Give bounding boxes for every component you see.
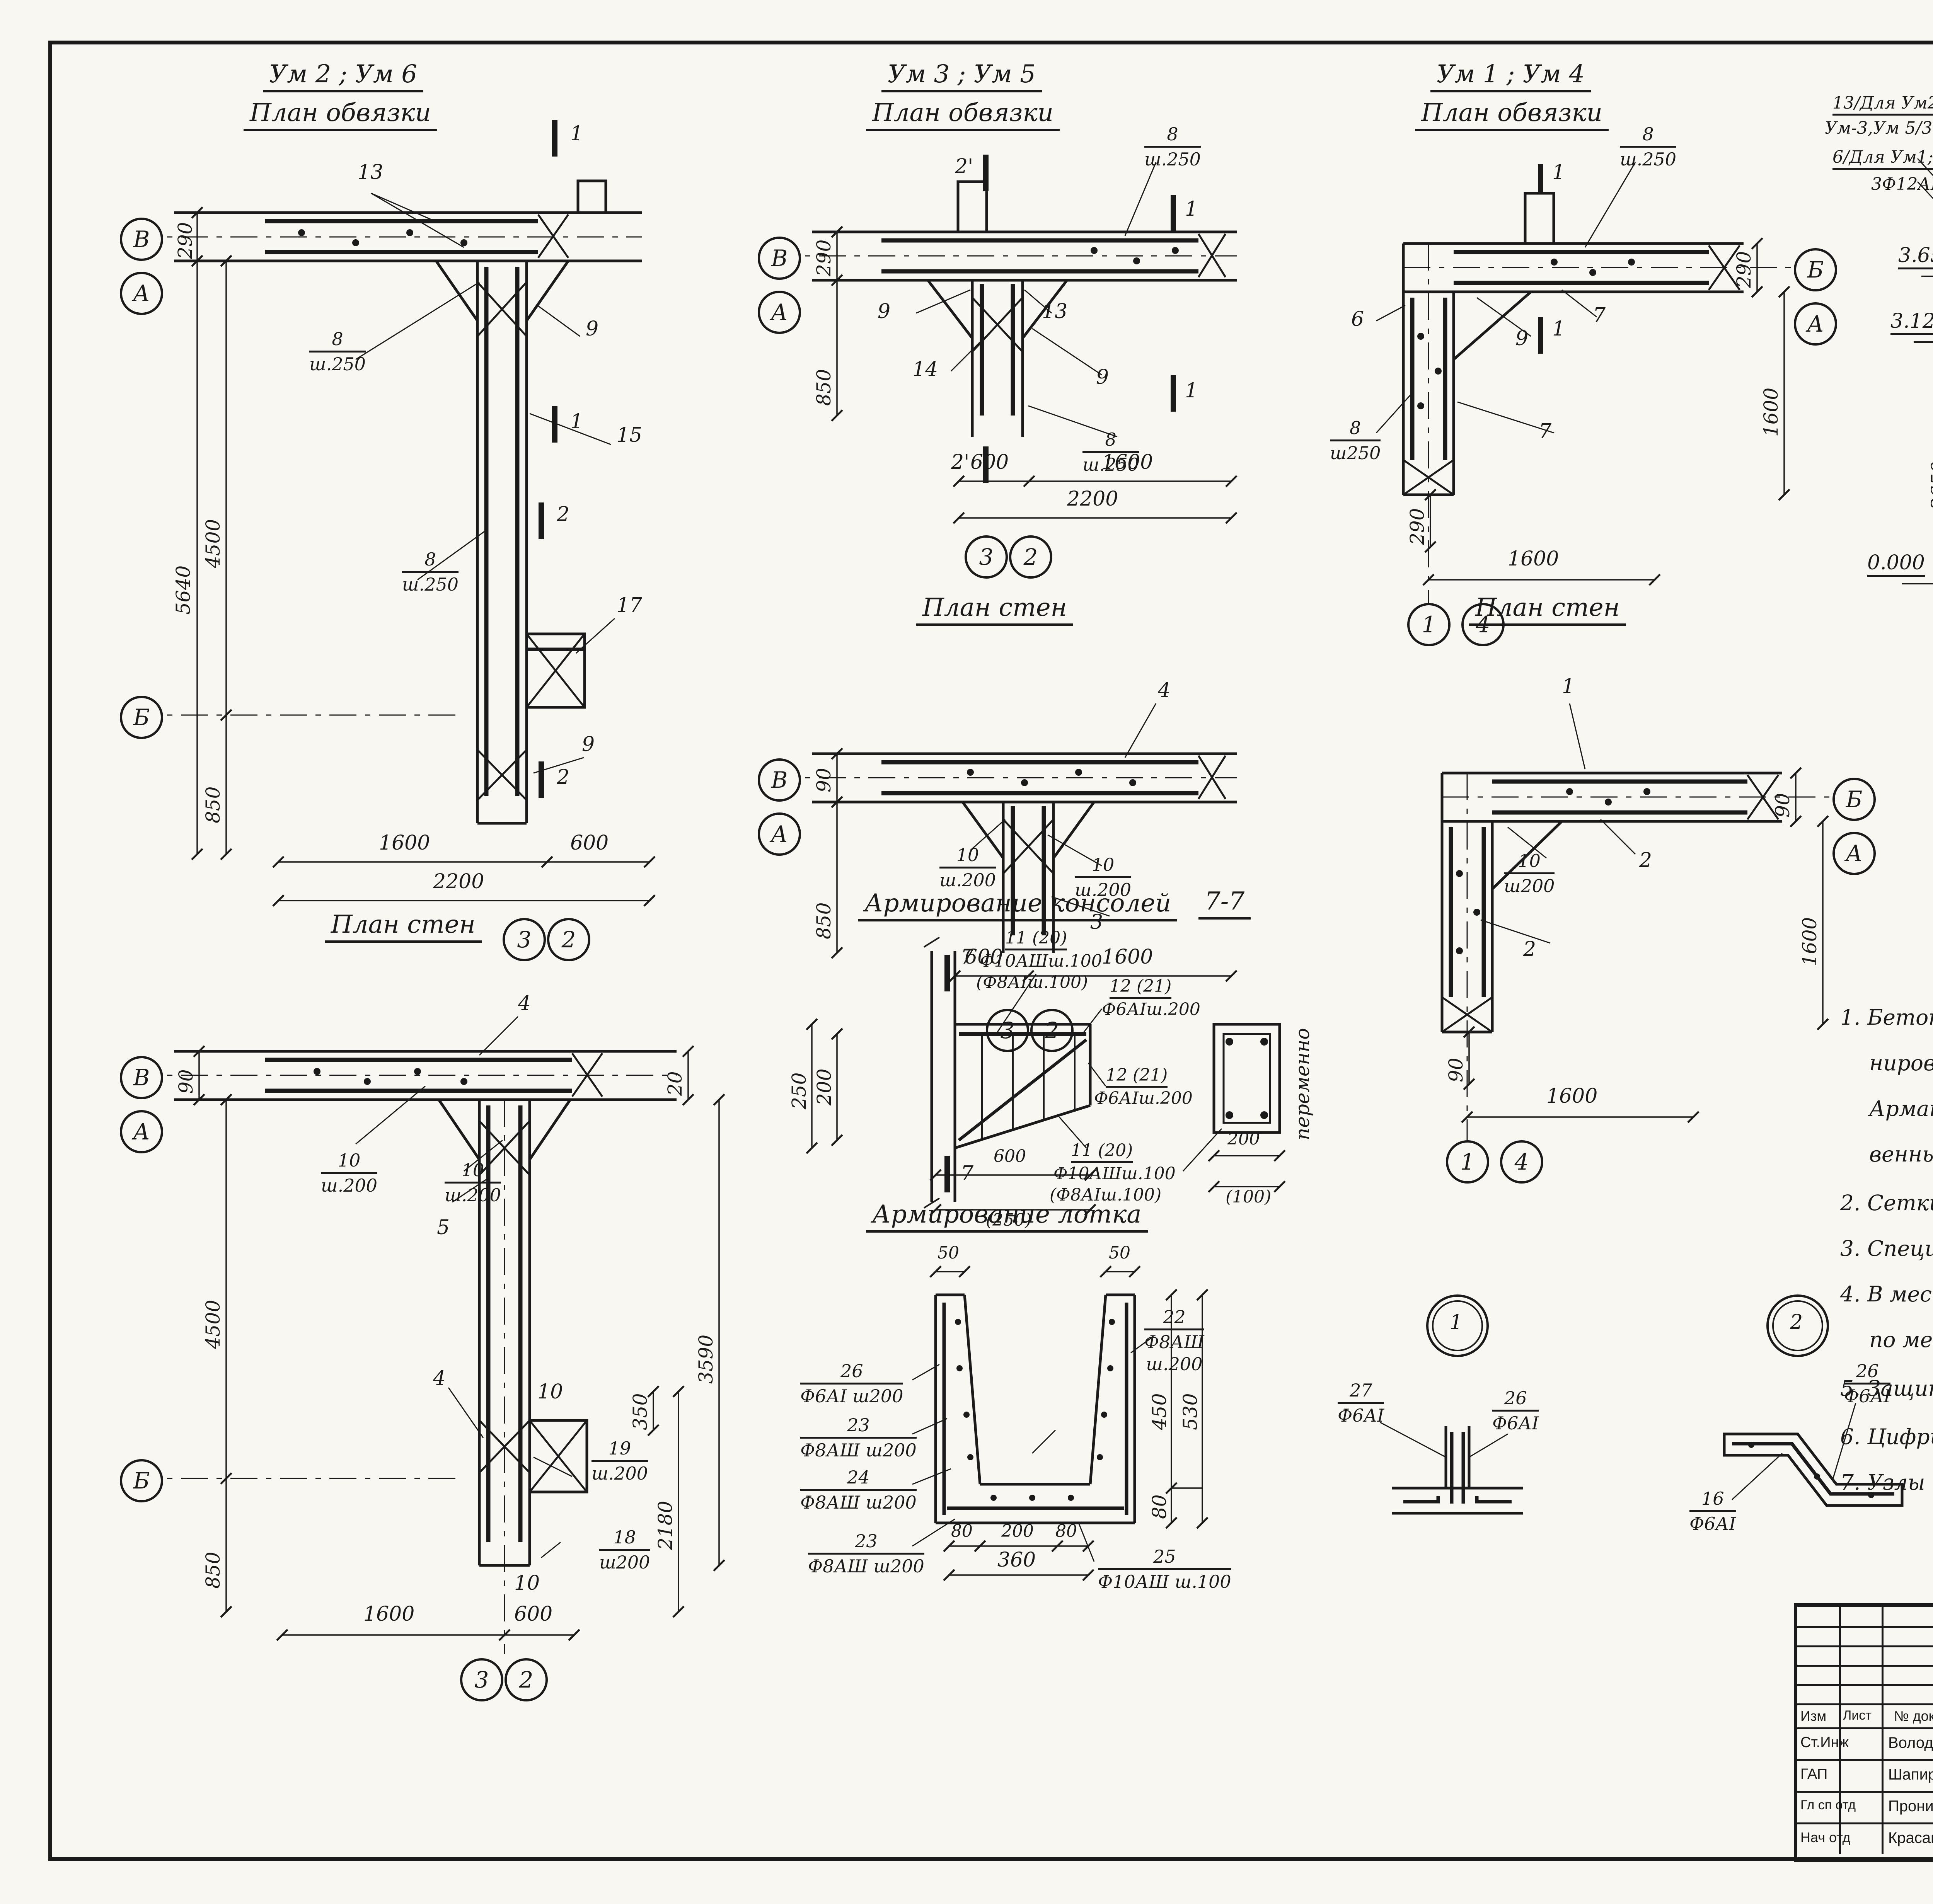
dim-1600: 1600: [363, 1604, 414, 1625]
rebar-callout: 22 Ф8АШ ш.200: [1144, 1306, 1204, 1374]
rebar-callout: 13: [358, 162, 383, 183]
rebar-callout: 10 ш200: [1504, 850, 1555, 896]
rebar-callout: 26 Ф6АI: [1492, 1388, 1539, 1434]
section-mark-7: 7: [961, 947, 973, 967]
note-line: нированием монолитных участков стен.: [1869, 1051, 1933, 1075]
drawing-title: Армирование консолей: [858, 891, 1177, 921]
rebar-callout: 17: [617, 595, 642, 616]
node-number: 1: [1450, 1312, 1463, 1333]
drawing-title: План стен: [916, 595, 1073, 626]
grid-axis-a: А: [1832, 832, 1876, 875]
dim-80: 80: [1148, 1494, 1171, 1519]
dim-530: 530: [1179, 1393, 1202, 1430]
dim-360: 360: [997, 1550, 1036, 1570]
dim-600: 600: [994, 1148, 1026, 1165]
dim-1600: 1600: [1508, 549, 1559, 569]
grid-axis-3: 3: [460, 1658, 503, 1701]
stamp-role: Гл сп отд: [1800, 1798, 1856, 1813]
rebar-callout: 8 ш.250: [309, 329, 366, 375]
rebar-callout: 10: [514, 1573, 540, 1594]
dim-850: 850: [813, 369, 835, 406]
level-0000: 0.000: [1867, 553, 1925, 577]
rebar-callout: 26 Ф6АI ш200: [800, 1361, 903, 1407]
rebar-callout: 25 Ф10АШ ш.100: [1098, 1546, 1231, 1592]
grid-axis-2: 2: [1009, 535, 1052, 579]
rebar-callout: Ф10АШш.100: [1053, 1165, 1176, 1183]
dim-290: 290: [1733, 251, 1755, 288]
stamp-header-dokum: № докум: [1894, 1708, 1933, 1724]
dim-90: 90: [1445, 1058, 1467, 1082]
grid-axis-b: Б: [120, 696, 163, 739]
plan-um1-um4-lines: [1314, 66, 1836, 657]
rebar-callout: 8 ш.250: [1144, 124, 1201, 170]
dim-600: 600: [570, 833, 609, 853]
stamp-line: [1797, 1665, 1933, 1667]
dim-90: 90: [175, 1069, 197, 1094]
stamp-line: [1797, 1727, 1933, 1729]
section-mark-2p: 2': [951, 452, 969, 473]
rebar-callout: 6: [1351, 309, 1364, 330]
dim-4500: 4500: [202, 519, 224, 568]
dim-3650: 3650: [1927, 461, 1933, 510]
note-line: венный каркас.: [1869, 1142, 1933, 1167]
note-line: 1. Бетонирование консолей вести совместн…: [1840, 1005, 1933, 1030]
note-line: 7. Узлы 1 ; 2 замаркированы на листе КЖ-…: [1840, 1470, 1933, 1495]
dim-1600: 1600: [379, 833, 430, 853]
grid-axis-v: В: [120, 218, 163, 261]
rebar-callout: 8 ш250: [1330, 417, 1381, 463]
section-mark-7: 7: [961, 1163, 973, 1184]
grid-axis-b: Б: [1832, 778, 1876, 821]
plan-sten-right-lines: [1353, 603, 1875, 1194]
stamp-name: Володин: [1888, 1734, 1933, 1752]
grid-axis-v: В: [758, 237, 801, 280]
rebar-callout: 11 (20): [1005, 930, 1067, 950]
drawing-title: Ум 3 ; Ум 5: [881, 62, 1042, 92]
note-line: Арматурные стержни консолей сварить в пр…: [1869, 1096, 1933, 1121]
rebar-callout: 27 Ф6АI: [1338, 1380, 1384, 1426]
grid-axis-4: 4: [1500, 1140, 1543, 1184]
rebar-callout: 3Ф12АШ: [1871, 176, 1933, 193]
rebar-callout: 9: [1515, 329, 1528, 349]
dim-1600: 1600: [1798, 917, 1821, 966]
rebar-callout: 18 ш200: [599, 1527, 650, 1573]
dim-100p: (100): [1226, 1189, 1271, 1206]
rebar-callout: Ум-3,Ум 5/3Ф12АШ: [1825, 120, 1933, 137]
rebar-callout: 7: [1593, 305, 1606, 326]
drawing-subtitle: План обвязки: [244, 100, 437, 131]
dim-2200: 2200: [1067, 489, 1118, 509]
rebar-callout: Ф10АШш.100: [980, 953, 1102, 970]
dim-250: 250: [788, 1073, 810, 1109]
rebar-callout: 9: [1096, 367, 1109, 388]
note-line: 6. Цифры в скобках даны для консоли выле…: [1840, 1424, 1933, 1449]
stamp-line: [1797, 1626, 1933, 1628]
rebar-callout: 24 Ф8АШ ш200: [800, 1467, 917, 1513]
rebar-callout: 10: [537, 1382, 563, 1402]
grid-axis-1: 1: [1446, 1140, 1489, 1184]
stamp-line: [1839, 1607, 1841, 1854]
grid-axis-a: А: [120, 1110, 163, 1153]
dim-850: 850: [202, 1552, 224, 1589]
stamp-line: [1797, 1822, 1933, 1824]
rebar-callout: Ф6АIш.200: [1102, 1001, 1200, 1018]
dim-90: 90: [1771, 793, 1794, 817]
dim-850: 850: [202, 787, 224, 823]
grid-axis-v: В: [120, 1056, 163, 1099]
rebar-callout: 23 Ф8АШ ш200: [808, 1531, 924, 1577]
dim-20: 20: [664, 1071, 686, 1096]
notes-block: 1. Бетонирование консолей вести совместн…: [1840, 1005, 1933, 1527]
drawing-subtitle: План обвязки: [866, 100, 1060, 131]
stamp-name: Красавин: [1888, 1829, 1933, 1847]
rebar-callout: 16 Ф6АI: [1689, 1488, 1736, 1534]
dim-5640: 5640: [172, 565, 194, 615]
grid-axis-a: А: [758, 812, 801, 856]
rebar-callout: 6/Для Ум1;Ум4/: [1832, 149, 1933, 170]
section-mark-1: 1: [570, 124, 583, 144]
rebar-callout: (Ф8АIш.100): [976, 974, 1088, 991]
grid-axis-b: Б: [120, 1459, 163, 1502]
grid-axis-a: А: [120, 272, 163, 315]
rebar-callout: 12 (21): [1106, 1067, 1168, 1088]
grid-axis-2: 2: [505, 1658, 548, 1701]
rebar-callout: 13/Для Ум2;Ум6: [1832, 95, 1933, 116]
rebar-callout: 7: [1539, 421, 1551, 442]
note-line: 2. Сетки разработаны на листе КЖ-8.: [1840, 1190, 1933, 1215]
plan-um3-um5: Ум 3 ; Ум 5 План обвязки 2' 2' 1 1 8 ш.2…: [754, 66, 1276, 591]
stamp-name: Пронин: [1888, 1798, 1933, 1815]
rebar-callout: 8 ш.250: [402, 549, 459, 595]
rebar-callout: 13: [1042, 301, 1067, 322]
dim-1600: 1600: [1546, 1086, 1597, 1107]
rebar-callout: 4: [518, 993, 531, 1014]
title-block: Изм Лист № докум Подпись Дата Ст.Инж Вол…: [1794, 1603, 1933, 1862]
section-mark-2: 2: [557, 504, 569, 525]
note-line: 3. Спецификацию и выборку арматуры см. л…: [1840, 1236, 1933, 1261]
dim-200: 200: [1001, 1523, 1034, 1540]
rebar-callout: 2: [1523, 939, 1536, 960]
dim-450: 450: [1148, 1393, 1171, 1430]
drawing-title: Ум 2 ; Ум 6: [263, 62, 423, 92]
detail-node-1: 1 27 Ф6АI 26 Ф6АI: [1322, 1272, 1593, 1550]
section-1-1: 1-1 13/Для Ум2;Ум6 Ум-3,Ум 5/3Ф12АШ 6/Дл…: [1825, 66, 1933, 692]
dim-600: 600: [970, 452, 1009, 473]
drawing-title: Ум 1 ; Ум 4: [1430, 62, 1591, 92]
section-mark-2p: 2': [955, 157, 973, 177]
dim-2180: 2180: [654, 1501, 677, 1550]
dim-3590: 3590: [695, 1335, 717, 1384]
dim-50: 50: [1109, 1245, 1130, 1262]
rebar-callout: 9: [878, 301, 890, 322]
rebar-callout: 10 ш.200: [321, 1150, 377, 1196]
dim-600: 600: [514, 1604, 552, 1625]
dim-1600: 1600: [1102, 452, 1153, 473]
stamp-role: Ст.Инж: [1800, 1734, 1849, 1751]
section-mark-1: 1: [1185, 199, 1198, 220]
rebar-callout: 19 ш.200: [591, 1438, 648, 1484]
section-mark-1: 1: [1552, 162, 1565, 183]
rebar-callout: 5: [437, 1218, 450, 1238]
drawing-title: План стен: [1469, 595, 1626, 626]
drawing-title: План стен: [325, 912, 482, 943]
rebar-callout: 4: [433, 1368, 446, 1389]
section-mark-1: 1: [570, 412, 583, 432]
note-line: 4. В местах установки сальников арматуру…: [1840, 1282, 1933, 1306]
level-3650: 3.650: [1898, 245, 1933, 269]
dim-2200: 2200: [433, 872, 484, 892]
stamp-line: [1797, 1684, 1933, 1686]
rebar-callout: Ф6АIш.200: [1094, 1090, 1193, 1107]
stamp-header-list: Лист: [1843, 1708, 1872, 1723]
drawing-subtitle: План обвязки: [1415, 100, 1609, 131]
dim-200: 200: [813, 1069, 835, 1105]
plan-sten-big: План стен 4 10 ш.200 10 ш.200 5 4 10 19 …: [116, 924, 754, 1697]
stamp-role: ГАП: [1800, 1766, 1827, 1783]
dim-80: 80: [1055, 1523, 1077, 1540]
dim-350: 350: [629, 1393, 651, 1430]
dim-290: 290: [813, 240, 835, 276]
stamp-line: [1797, 1791, 1933, 1793]
plan-um1-um4: Ум 1 ; Ум 4 План обвязки 1 1 8 ш.250 6 9…: [1314, 66, 1836, 657]
level-3120: 3.120: [1890, 311, 1933, 335]
stamp-line: [1882, 1607, 1884, 1854]
plan-sten-right: План стен 1 2 10 ш200 2 90 1600 90 1600 …: [1353, 603, 1875, 1194]
dim-90: 90: [813, 768, 835, 792]
rebar-callout: 10 ш.200: [445, 1160, 501, 1206]
rebar-callout: 10 ш.200: [939, 845, 996, 891]
section-mark-2: 2: [557, 767, 569, 788]
stamp-line: [1797, 1645, 1933, 1647]
dim-50: 50: [938, 1245, 959, 1262]
console-reinforcement-7-7: Армирование консолей 7-7 7 7 11 (20) Ф10…: [765, 901, 1326, 1237]
dim-80: 80: [951, 1523, 973, 1540]
rebar-callout: 9: [586, 319, 598, 339]
rebar-callout: 15: [617, 425, 642, 446]
rebar-callout: 8 ш.250: [1620, 124, 1676, 170]
note-line: по месту и приварить к корпусу сальника.: [1869, 1327, 1933, 1352]
stamp-line: [1797, 1703, 1933, 1705]
note-line: 5. Защитный слой бетона - 20 мм.: [1840, 1376, 1933, 1401]
rebar-callout: 11 (20): [1071, 1142, 1133, 1163]
rebar-callout: 23 Ф8АШ ш200: [800, 1415, 917, 1461]
stamp-role: Нач отд: [1800, 1829, 1851, 1846]
rebar-callout: 12 (21): [1110, 978, 1171, 999]
dim-1600: 1600: [1760, 388, 1782, 437]
drawing-title: Армирование лотка: [866, 1202, 1148, 1233]
dim-290: 290: [174, 222, 196, 259]
section-ref: 7-7: [1198, 889, 1251, 920]
stamp-header-izm: Изм: [1800, 1708, 1826, 1724]
label-peremenno: переменно: [1291, 1028, 1314, 1140]
section-mark-1: 1: [1552, 319, 1565, 339]
rebar-callout: 9: [582, 734, 595, 755]
rebar-callout: 14: [912, 359, 938, 380]
stamp-line: [1797, 1759, 1933, 1761]
stamp-name: Шапиро: [1888, 1766, 1933, 1783]
dim-4500: 4500: [202, 1300, 224, 1349]
node-number: 2: [1790, 1312, 1803, 1333]
plan-um2-um6: Ум 2 ; Ум 6 План обвязки 1 1 2 2 13 8 ш.…: [116, 66, 696, 966]
rebar-callout: 4: [1158, 680, 1171, 701]
grid-axis-v: В: [758, 758, 801, 802]
rebar-callout: 1: [1562, 676, 1575, 697]
section-mark-1: 1: [1185, 381, 1198, 401]
dim-290: 290: [1406, 508, 1428, 545]
blueprint-sheet: Ум 2 ; Ум 6 План обвязки 1 1 2 2 13 8 ш.…: [0, 0, 1933, 1904]
rebar-callout: 2: [1639, 850, 1652, 871]
grid-axis-a: А: [758, 291, 801, 334]
dim-200: 200: [1227, 1131, 1260, 1148]
grid-axis-3: 3: [965, 535, 1008, 579]
channel-reinforcement: Армирование лотка 50 50 26 Ф6АI ш200 23 …: [785, 1214, 1287, 1592]
